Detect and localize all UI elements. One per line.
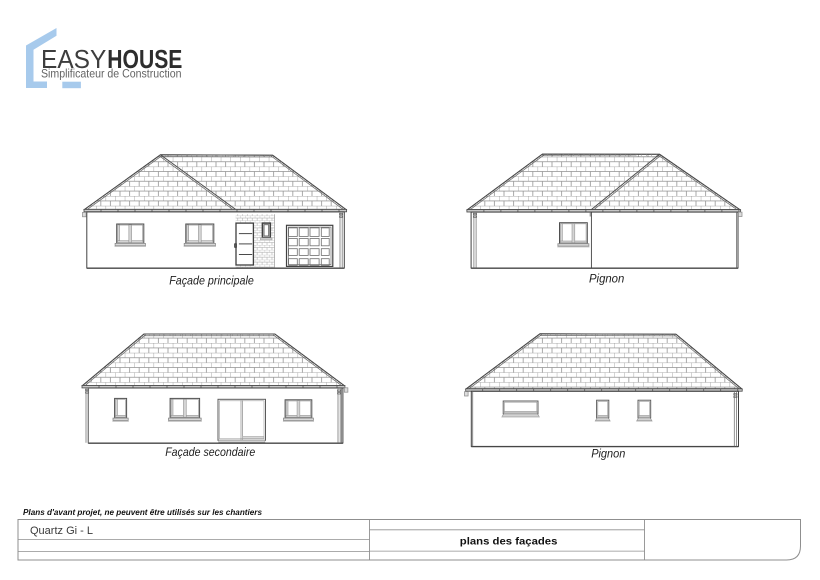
svg-text:Simplificateur de Construction: Simplificateur de Construction: [41, 67, 182, 81]
svg-text:Façade principale: Façade principale: [169, 273, 254, 287]
svg-text:Pignon: Pignon: [589, 272, 625, 286]
svg-text:Pignon: Pignon: [591, 446, 625, 460]
svg-text:plans des façades: plans des façades: [460, 536, 558, 548]
svg-text:Plans d'avant projet, ne peuve: Plans d'avant projet, ne peuvent être ut…: [23, 508, 263, 517]
svg-text:Façade secondaire: Façade secondaire: [165, 445, 255, 459]
svg-text:Quartz Gi - L: Quartz Gi - L: [30, 525, 93, 537]
